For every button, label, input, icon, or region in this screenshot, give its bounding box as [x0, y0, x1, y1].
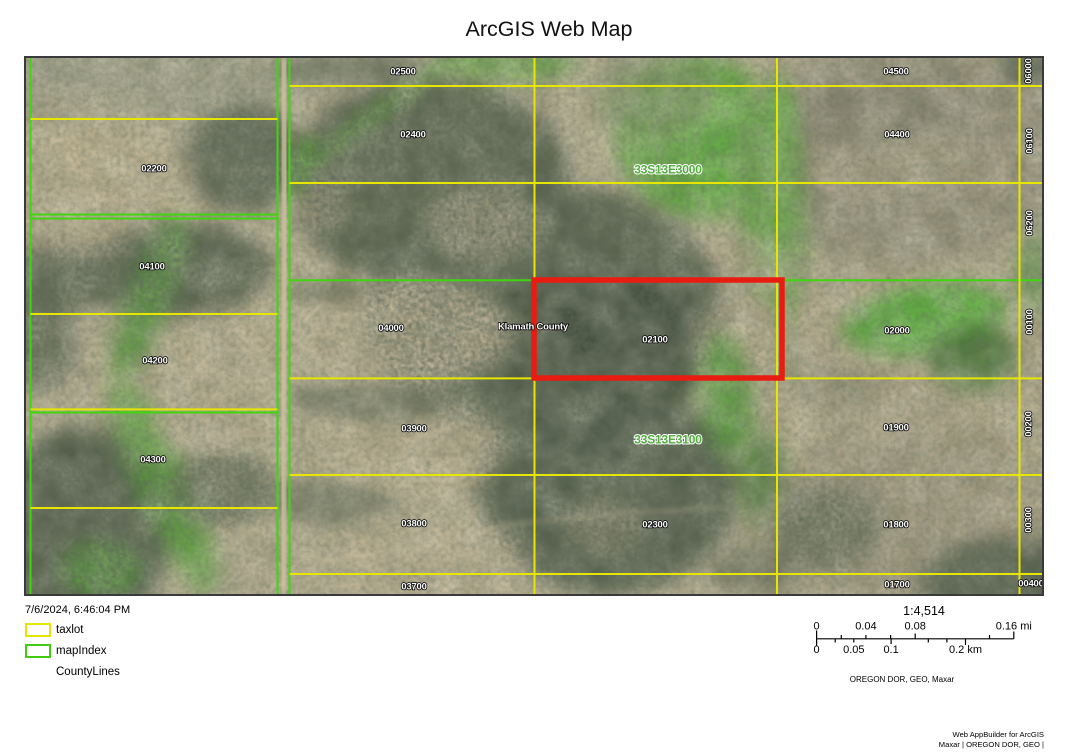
- svg-text:00100: 00100: [1025, 309, 1036, 334]
- svg-text:0: 0: [814, 644, 820, 656]
- svg-text:06200: 06200: [1025, 210, 1036, 235]
- svg-text:06000: 06000: [1024, 58, 1035, 83]
- svg-text:0: 0: [814, 621, 820, 633]
- svg-text:Klamath County: Klamath County: [498, 322, 569, 333]
- svg-text:0.2 km: 0.2 km: [949, 644, 982, 656]
- svg-text:02000: 02000: [884, 326, 909, 337]
- svg-text:04100: 04100: [139, 262, 164, 273]
- svg-text:02100: 02100: [642, 335, 667, 346]
- svg-text:01700: 01700: [884, 580, 909, 591]
- svg-text:0.16 mi: 0.16 mi: [996, 621, 1032, 633]
- svg-text:00400: 00400: [1018, 579, 1042, 590]
- svg-text:03700: 03700: [401, 582, 426, 593]
- svg-text:0.04: 0.04: [855, 621, 876, 633]
- svg-text:03900: 03900: [401, 424, 426, 435]
- svg-text:04400: 04400: [884, 130, 909, 141]
- svg-text:04300: 04300: [140, 455, 165, 466]
- svg-text:33S13E3000: 33S13E3000: [634, 163, 702, 177]
- svg-text:00200: 00200: [1024, 411, 1035, 436]
- svg-text:04500: 04500: [883, 67, 908, 78]
- svg-text:04000: 04000: [378, 323, 403, 334]
- svg-text:02400: 02400: [400, 130, 425, 141]
- svg-text:0.08: 0.08: [904, 621, 925, 633]
- svg-text:03800: 03800: [401, 519, 426, 530]
- svg-text:04200: 04200: [142, 356, 167, 367]
- svg-text:06100: 06100: [1025, 128, 1036, 153]
- svg-text:33S13E3100: 33S13E3100: [634, 433, 702, 447]
- svg-text:0.05: 0.05: [843, 644, 864, 656]
- svg-text:02200: 02200: [141, 164, 166, 175]
- svg-text:01800: 01800: [883, 520, 908, 531]
- svg-text:01900: 01900: [883, 423, 908, 434]
- svg-text:02500: 02500: [390, 67, 415, 78]
- svg-text:00300: 00300: [1024, 507, 1035, 532]
- svg-text:0.1: 0.1: [883, 644, 898, 656]
- svg-text:02300: 02300: [642, 520, 667, 531]
